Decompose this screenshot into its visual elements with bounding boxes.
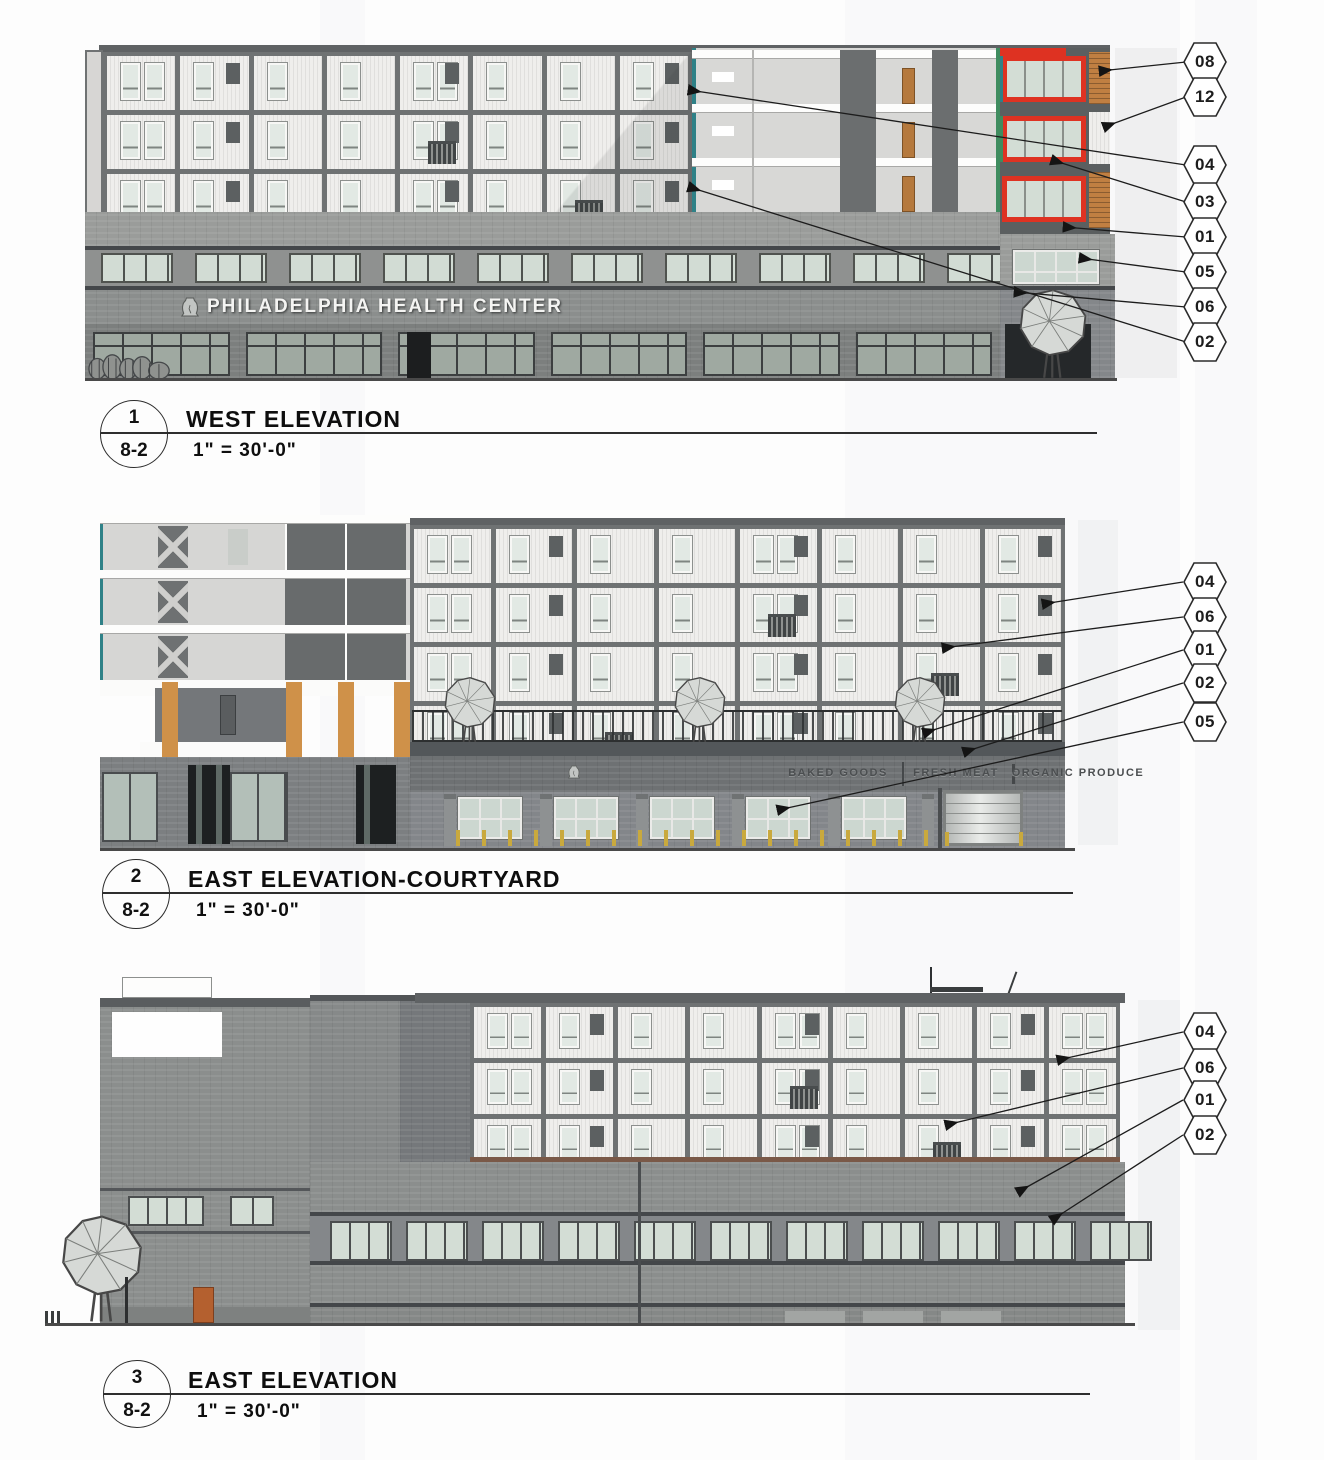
- wood-door: [902, 176, 915, 212]
- podium-window: [101, 253, 173, 283]
- storefront-glass: [230, 772, 288, 842]
- callout-hex: 04: [1183, 145, 1227, 185]
- drawing-scale: 1" = 30'-0": [197, 1401, 301, 1423]
- module-window: [991, 1014, 1010, 1048]
- orange-pilaster: [286, 682, 302, 757]
- container-module: [985, 588, 1062, 642]
- container-module: [822, 529, 904, 583]
- module-window: [1087, 1014, 1106, 1048]
- market-sign-text: BAKED GOODS: [783, 767, 893, 779]
- container-module: [740, 529, 822, 583]
- parapet-step: [122, 977, 212, 998]
- drawing-scale: 1" = 30'-0": [196, 900, 300, 922]
- module-panel: [226, 63, 240, 84]
- red-framed-glazing: [1002, 56, 1086, 102]
- callout-number: 02: [1183, 1115, 1227, 1155]
- roof-antenna: [930, 987, 983, 992]
- container-module: [833, 1063, 905, 1114]
- container-module: [400, 115, 473, 169]
- container-module: [473, 56, 546, 110]
- storefront-window: [856, 332, 993, 376]
- callout-hex: 01: [1183, 1080, 1227, 1120]
- liberty-bell-icon: [568, 764, 580, 780]
- module-window: [754, 536, 773, 573]
- container-module: [905, 1063, 977, 1114]
- orange-pilaster: [394, 682, 410, 757]
- callout-hex: 08: [1183, 42, 1227, 82]
- market-sign-text: ORGANIC PRODUCE: [1010, 767, 1146, 779]
- red-framed-glazing: [1002, 176, 1086, 222]
- container-module-block: [470, 1003, 1120, 1157]
- drawing-number-bubble: 2 8-2: [102, 859, 170, 929]
- podium-window: [195, 253, 267, 283]
- module-window: [268, 122, 287, 159]
- blank-sign-panel: [112, 1012, 222, 1057]
- building-section-cut: [100, 515, 410, 680]
- container-module: [690, 1007, 762, 1058]
- module-panel: [590, 1126, 604, 1147]
- wall-joint: [938, 788, 942, 848]
- sign-divider: [902, 762, 904, 786]
- module-window: [452, 536, 471, 573]
- ribbon-window: [1090, 1221, 1152, 1261]
- ribbon-window: [1014, 1221, 1076, 1261]
- container-module: [107, 115, 180, 169]
- container-module: [822, 588, 904, 642]
- band-joint: [100, 1188, 310, 1191]
- module-window: [776, 1014, 795, 1048]
- module-window: [632, 1014, 651, 1048]
- ribbon-window: [406, 1221, 468, 1261]
- podium-window: [383, 253, 455, 283]
- module-window: [754, 654, 773, 691]
- callout-number: 04: [1183, 562, 1227, 602]
- module-window: [847, 1014, 866, 1048]
- container-module: [985, 647, 1062, 701]
- container-module: [474, 1063, 546, 1114]
- module-panel: [445, 122, 459, 143]
- module-window: [999, 654, 1018, 691]
- container-module: [577, 529, 659, 583]
- module-window: [673, 595, 692, 632]
- module-window: [917, 536, 936, 573]
- callout-hex: 02: [1183, 1115, 1227, 1155]
- module-panel: [1021, 1014, 1035, 1035]
- bollard: [945, 832, 949, 846]
- tower-parapet-cap: [100, 998, 310, 1007]
- container-module: [546, 1063, 618, 1114]
- module-window: [591, 536, 610, 573]
- module-window: [919, 1014, 938, 1048]
- module-window: [145, 63, 164, 100]
- module-window: [145, 122, 164, 159]
- podium-window-band: [85, 250, 1000, 286]
- module-window: [919, 1070, 938, 1104]
- ribbon-window: [862, 1221, 924, 1261]
- module-panel: [590, 1014, 604, 1035]
- callout-number: 04: [1183, 145, 1227, 185]
- cast-shadow: [1138, 1000, 1180, 1330]
- drawing-number: 3: [104, 1361, 170, 1394]
- ribbon-window-band: [310, 1216, 1125, 1261]
- podium-window: [1013, 250, 1099, 284]
- module-panel: [1038, 536, 1052, 557]
- module-window: [591, 654, 610, 691]
- module-window: [341, 63, 360, 100]
- sign-band: PHILADELPHIA HEALTH CENTER: [85, 290, 1000, 324]
- west-elevation-drawing: PHILADELPHIA HEALTH CENTER: [85, 40, 1115, 380]
- storefront-window: [551, 332, 688, 376]
- callout-number: 06: [1183, 287, 1227, 327]
- faceted-tree: [58, 1213, 146, 1325]
- faceted-tree: [438, 676, 502, 746]
- module-panel: [794, 536, 808, 557]
- tower-window: [230, 1196, 274, 1226]
- dark-brick-block: [400, 995, 470, 1185]
- container-module: [577, 588, 659, 642]
- callout-number: 12: [1183, 77, 1227, 117]
- faceted-tree: [668, 676, 732, 746]
- container-module: [659, 588, 741, 642]
- module-window: [510, 536, 529, 573]
- podium-brick-band: [85, 212, 1000, 246]
- module-siding-strip: [1089, 112, 1110, 164]
- module-window: [847, 1070, 866, 1104]
- container-module: [977, 1063, 1049, 1114]
- module-window: [591, 595, 610, 632]
- floor-slab: [100, 625, 410, 634]
- orange-brick-strip: [1089, 172, 1110, 228]
- site-post: [125, 1277, 128, 1323]
- module-window: [268, 63, 287, 100]
- drawing-scale: 1" = 30'-0": [193, 440, 297, 462]
- section-partition: [752, 50, 754, 220]
- module-panel: [549, 654, 563, 675]
- podium-window: [665, 253, 737, 283]
- green-trim: [1000, 116, 1003, 162]
- module-window: [560, 1014, 579, 1048]
- module-panel: [794, 595, 808, 616]
- container-module: [905, 1007, 977, 1058]
- podium-brick-band: [310, 1162, 1125, 1212]
- teal-trim: [1000, 56, 1003, 102]
- section-notch: [712, 72, 734, 82]
- module-panel: [445, 63, 459, 84]
- callout-number: 02: [1183, 663, 1227, 703]
- callout-number: 01: [1183, 1080, 1227, 1120]
- bollard: [1019, 832, 1023, 846]
- base-panel: [863, 1311, 923, 1323]
- drawing-title: EAST ELEVATION: [188, 1367, 398, 1394]
- podium-window: [759, 253, 831, 283]
- module-window: [999, 595, 1018, 632]
- terrace-railing: [412, 712, 1062, 742]
- storefront-glass: [102, 772, 158, 842]
- canopy-door: [220, 695, 236, 735]
- orange-pilaster: [338, 682, 354, 757]
- braced-column: [158, 526, 188, 568]
- roof-parapet: [415, 993, 1125, 1003]
- base-panel: [785, 1311, 845, 1323]
- drawing-number-bubble: 1 8-2: [100, 400, 168, 468]
- ribbon-window: [558, 1221, 620, 1261]
- module-window: [488, 1014, 507, 1048]
- container-module: [414, 588, 496, 642]
- drawing-number: 2: [103, 860, 169, 894]
- balcony-railing: [790, 1086, 818, 1109]
- callout-hex: 04: [1183, 562, 1227, 602]
- module-window: [1063, 1014, 1082, 1048]
- container-module: [414, 529, 496, 583]
- section-partition: [345, 524, 347, 680]
- module-window: [488, 1070, 507, 1104]
- orange-pilaster: [162, 682, 178, 757]
- faceted-tree: [1007, 288, 1099, 380]
- module-window: [847, 1126, 866, 1160]
- container-module: [903, 588, 985, 642]
- sheet-number: 8-2: [101, 434, 167, 467]
- braced-column: [158, 581, 188, 623]
- module-panel: [1038, 654, 1052, 675]
- module-panel: [1038, 595, 1052, 616]
- module-window: [632, 1126, 651, 1160]
- container-module: [833, 1007, 905, 1058]
- callout-number: 05: [1183, 252, 1227, 292]
- module-panel: [805, 1126, 819, 1147]
- module-panel: [549, 595, 563, 616]
- wall-joint: [638, 1162, 641, 1323]
- callout-number: 08: [1183, 42, 1227, 82]
- container-module: [474, 1007, 546, 1058]
- dark-entry-door: [188, 765, 230, 844]
- module-window: [560, 1126, 579, 1160]
- module-window: [512, 1070, 531, 1104]
- module-panel: [805, 1014, 819, 1035]
- container-module: [473, 115, 546, 169]
- shadow-overlay: [555, 52, 692, 215]
- module-window: [428, 536, 447, 573]
- module-window: [999, 536, 1018, 573]
- faceted-tree: [888, 676, 952, 746]
- floor-slab: [100, 570, 410, 579]
- container-module: [107, 56, 180, 110]
- module-panel: [445, 181, 459, 202]
- module-panel: [549, 536, 563, 557]
- container-module: [496, 529, 578, 583]
- wood-door: [902, 68, 915, 104]
- module-window: [1063, 1070, 1082, 1104]
- module-panel: [226, 122, 240, 143]
- ground-line: [45, 1323, 1135, 1326]
- east-elevation-drawing: [45, 965, 1135, 1340]
- module-window: [991, 1070, 1010, 1104]
- container-module: [180, 115, 253, 169]
- liberty-bell-icon: [181, 296, 199, 318]
- container-module: [659, 529, 741, 583]
- module-window: [1063, 1126, 1082, 1160]
- balcony-railing: [428, 141, 456, 164]
- section-notch: [712, 126, 734, 136]
- container-module: [618, 1063, 690, 1114]
- drawing-number-bubble: 3 8-2: [103, 1360, 171, 1428]
- storefront-window: [246, 332, 383, 376]
- module-window: [510, 654, 529, 691]
- drawing-title: EAST ELEVATION-COURTYARD: [188, 866, 560, 893]
- container-module: [740, 588, 822, 642]
- wood-door: [902, 122, 915, 158]
- cast-shadow: [1078, 520, 1118, 845]
- section-edge-trim: [692, 48, 696, 220]
- storefront-pier: [444, 794, 456, 846]
- container-module: [1049, 1063, 1116, 1114]
- red-accent-module-stack: [1000, 48, 1110, 234]
- module-window: [836, 654, 855, 691]
- site-equipment: [45, 1311, 61, 1323]
- module-window: [704, 1070, 723, 1104]
- callout-number: 03: [1183, 182, 1227, 222]
- module-window: [341, 122, 360, 159]
- module-window: [704, 1126, 723, 1160]
- container-module: [762, 1007, 834, 1058]
- module-window: [428, 595, 447, 632]
- container-module: [762, 1063, 834, 1114]
- container-module: [496, 647, 578, 701]
- module-window: [512, 1014, 531, 1048]
- section-shaft-wall: [932, 50, 958, 220]
- callout-hex: 04: [1183, 1012, 1227, 1052]
- container-module: [740, 647, 822, 701]
- container-module: [577, 647, 659, 701]
- balcony-railing: [768, 614, 796, 637]
- ribbon-window: [786, 1221, 848, 1261]
- podium-window: [289, 253, 361, 283]
- cast-shadow: [1115, 48, 1177, 378]
- module-window: [512, 1126, 531, 1160]
- podium-brick: [310, 1265, 1125, 1303]
- podium-window: [571, 253, 643, 283]
- callout-hex: 03: [1183, 182, 1227, 222]
- lower-storefront: [100, 757, 410, 848]
- building-sign-text: PHILADELPHIA HEALTH CENTER: [207, 296, 563, 318]
- callout-number: 05: [1183, 702, 1227, 742]
- bollard-row: [456, 830, 936, 846]
- container-module: [327, 56, 400, 110]
- callout-number: 02: [1183, 322, 1227, 362]
- callout-number: 01: [1183, 217, 1227, 257]
- ground-line: [85, 378, 1117, 381]
- section-edge-trim: [100, 515, 103, 680]
- module-window: [836, 536, 855, 573]
- module-window: [1087, 1126, 1106, 1160]
- podium-base: [310, 1307, 1125, 1323]
- base-panel: [941, 1311, 1001, 1323]
- podium-window: [477, 253, 549, 283]
- module-window: [121, 63, 140, 100]
- module-window: [560, 1070, 579, 1104]
- module-window: [704, 1014, 723, 1048]
- braced-column: [158, 636, 188, 678]
- container-module: [400, 56, 473, 110]
- module-window: [121, 122, 140, 159]
- container-module: [180, 56, 253, 110]
- cornice-band: [410, 742, 1065, 756]
- building-section-cut: [692, 48, 1000, 220]
- module-window: [673, 536, 692, 573]
- ground-storefront: [85, 324, 1000, 378]
- container-module: [254, 115, 327, 169]
- red-framed-glazing: [1002, 116, 1086, 162]
- module-window: [991, 1126, 1010, 1160]
- callout-hex: 05: [1183, 252, 1227, 292]
- ribbon-window: [710, 1221, 772, 1261]
- module-window: [194, 63, 213, 100]
- module-window: [414, 63, 433, 100]
- section-glass: [228, 529, 248, 565]
- module-panel: [226, 181, 240, 202]
- callout-hex: 12: [1183, 77, 1227, 117]
- sheet-number: 8-2: [103, 894, 169, 928]
- module-window: [488, 1126, 507, 1160]
- module-window: [510, 595, 529, 632]
- container-module: [1049, 1007, 1116, 1058]
- container-module: [618, 1007, 690, 1058]
- container-module: [690, 1063, 762, 1114]
- entry-door: [407, 332, 431, 378]
- elevation-sheet: PHILADELPHIA HEALTH CENTER: [0, 0, 1324, 1460]
- container-module: [546, 1007, 618, 1058]
- callout-hex: 02: [1183, 322, 1227, 362]
- section-notch: [712, 180, 734, 190]
- courtyard-storefront: [410, 792, 1065, 848]
- callout-hex: 05: [1183, 702, 1227, 742]
- floor-slab: [100, 515, 410, 524]
- module-window: [194, 122, 213, 159]
- podium-window: [853, 253, 925, 283]
- module-window: [1087, 1070, 1106, 1104]
- section-shaft-wall: [840, 50, 876, 220]
- sheet-number: 8-2: [104, 1394, 170, 1427]
- facade-detail: [85, 50, 103, 215]
- service-door: [193, 1287, 214, 1323]
- callout-hex: 01: [1183, 217, 1227, 257]
- module-panel: [1021, 1126, 1035, 1147]
- callout-hex: 06: [1183, 287, 1227, 327]
- module-window: [452, 595, 471, 632]
- ground-line: [100, 848, 1075, 851]
- module-window: [487, 122, 506, 159]
- drawing-number: 1: [101, 401, 167, 434]
- ribbon-window: [330, 1221, 392, 1261]
- module-window: [836, 595, 855, 632]
- container-module: [496, 588, 578, 642]
- bushes: [87, 352, 173, 380]
- container-module: [903, 529, 985, 583]
- market-sign-text: FRESH MEAT: [908, 767, 1004, 779]
- module-window: [632, 1070, 651, 1104]
- module-panel: [1021, 1070, 1035, 1091]
- callout-number: 04: [1183, 1012, 1227, 1052]
- market-sign-band: BAKED GOODS FRESH MEAT ORGANIC PRODUCE: [410, 756, 1065, 792]
- module-window: [917, 595, 936, 632]
- storefront-window: [703, 332, 840, 376]
- garage-door: [943, 790, 1023, 846]
- dark-entry-door: [356, 765, 396, 844]
- module-panel: [794, 654, 808, 675]
- module-window: [776, 1126, 795, 1160]
- east-elevation-courtyard-drawing: BAKED GOODS FRESH MEAT ORGANIC PRODUCE: [100, 510, 1075, 852]
- callout-hex: 02: [1183, 663, 1227, 703]
- module-panel: [590, 1070, 604, 1091]
